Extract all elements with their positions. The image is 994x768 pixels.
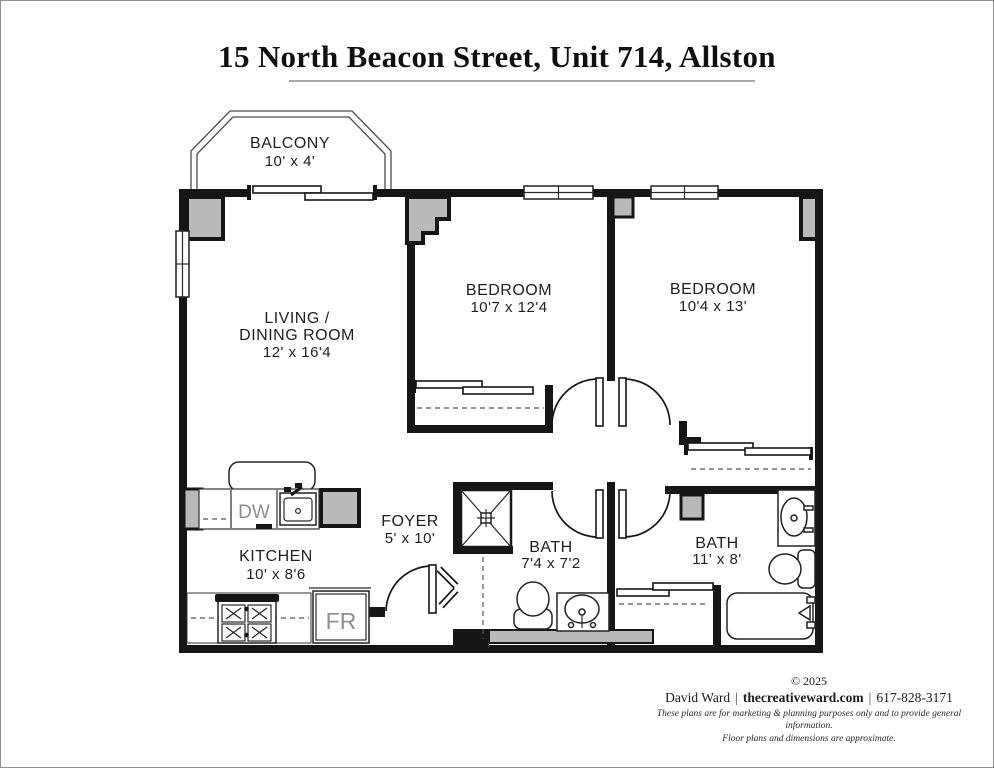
bathtub-icon	[727, 593, 815, 639]
svg-text:BATH: BATH	[695, 535, 738, 552]
sink-icon-bath2	[778, 490, 815, 546]
balcony-sliding-door	[253, 186, 373, 200]
website: thecreativeward.com	[743, 690, 864, 705]
bath2-door	[619, 490, 670, 538]
author-name: David Ward	[665, 690, 730, 705]
phone-number: 617-828-3171	[876, 690, 953, 705]
living-dining-label: LIVING / DINING ROOM 12' x 16'4	[239, 310, 355, 361]
svg-text:5' x 10': 5' x 10'	[385, 530, 436, 547]
pilaster-bath2-door	[681, 495, 703, 519]
svg-text:10' x 8'6: 10' x 8'6	[246, 566, 305, 583]
entry-door	[386, 565, 436, 613]
kitchen-peninsula-counter	[229, 462, 315, 491]
window-bedroom2	[651, 186, 718, 199]
foyer-closet-bifold-door	[439, 569, 456, 606]
refrigerator-label: FR	[326, 608, 357, 634]
wall-left-lower	[179, 297, 187, 653]
stove-icon	[215, 594, 279, 643]
separator: |	[864, 690, 877, 705]
bedroom2-door	[619, 378, 670, 426]
dishwasher-label: DW	[238, 502, 270, 523]
bath1-door	[552, 490, 603, 538]
floorplan-page: 15 North Beacon Street, Unit 714, Allsto…	[0, 0, 994, 768]
kitchen-label: KITCHEN 10' x 8'6	[239, 548, 313, 583]
bath2-closet-sliding-door	[617, 583, 713, 604]
footer: © 2025 David Ward|thecreativeward.com|61…	[649, 674, 969, 745]
wall-closet1-bottom	[407, 425, 553, 433]
wall-bath2-closet-right	[713, 585, 721, 653]
copyright: © 2025	[649, 674, 969, 689]
svg-text:12' x 16'4: 12' x 16'4	[263, 344, 331, 361]
window-living-left	[176, 231, 189, 297]
wall-right	[815, 189, 823, 653]
disclaimer-line-1: These plans are for marketing & planning…	[649, 708, 969, 733]
foyer-label: FOYER 5' x 10'	[381, 513, 439, 547]
svg-text:BALCONY: BALCONY	[250, 135, 330, 152]
doors	[386, 378, 670, 613]
bath2-label: BATH 11' x 8'	[692, 535, 741, 568]
refrigerator: FR	[309, 588, 371, 643]
balcony-door-end-left	[247, 185, 251, 200]
bedroom1-closet-sliding-door	[412, 380, 544, 408]
pilaster-kitchen-right	[321, 490, 359, 526]
pilaster-top-right	[801, 197, 817, 239]
floor-threshold-band	[489, 630, 653, 643]
bath1-label: BATH 7'4 x 7'2	[521, 539, 580, 572]
wall-bedroom1-bedroom2	[607, 197, 615, 381]
svg-text:10'7 x 12'4: 10'7 x 12'4	[470, 299, 547, 316]
pilaster-bedroom1-corner	[407, 197, 449, 243]
svg-text:11' x 8': 11' x 8'	[692, 551, 741, 568]
pilaster-between-bedrooms	[613, 197, 633, 217]
svg-text:LIVING /: LIVING /	[264, 310, 329, 327]
svg-text:10'4 x 13': 10'4 x 13'	[679, 298, 747, 315]
svg-text:7'4 x 7'2: 7'4 x 7'2	[521, 555, 580, 572]
svg-text:10' x 4': 10' x 4'	[265, 153, 316, 170]
svg-text:FOYER: FOYER	[381, 513, 439, 530]
svg-text:BEDROOM: BEDROOM	[670, 281, 756, 298]
balcony-label: BALCONY 10' x 4'	[250, 135, 330, 170]
bedroom2-label: BEDROOM 10'4 x 13'	[670, 281, 756, 315]
bedroom1-door	[552, 378, 603, 426]
credit-line: David Ward|thecreativeward.com|617-828-3…	[649, 690, 969, 706]
shower-icon	[461, 490, 511, 547]
wall-bottom	[179, 645, 823, 653]
floorplan-drawing: DW	[1, 1, 994, 768]
bedroom2-closet-sliding-door	[684, 442, 813, 469]
separator: |	[730, 690, 743, 705]
wall-closet1-right	[545, 385, 553, 433]
disclaimer-line-2: Floor plans and dimensions are approxima…	[649, 733, 969, 745]
window-bedroom1	[524, 186, 593, 199]
toilet-icon-bath1	[514, 582, 552, 629]
svg-text:BEDROOM: BEDROOM	[466, 282, 552, 299]
pilaster-top-left	[187, 197, 223, 239]
toilet-icon-bath2	[769, 550, 815, 588]
bedroom1-label: BEDROOM 10'7 x 12'4	[466, 282, 552, 316]
sink-icon-bath1	[557, 593, 609, 631]
svg-text:BATH: BATH	[529, 539, 572, 556]
svg-text:KITCHEN: KITCHEN	[239, 548, 313, 565]
svg-text:DINING ROOM: DINING ROOM	[239, 327, 355, 344]
